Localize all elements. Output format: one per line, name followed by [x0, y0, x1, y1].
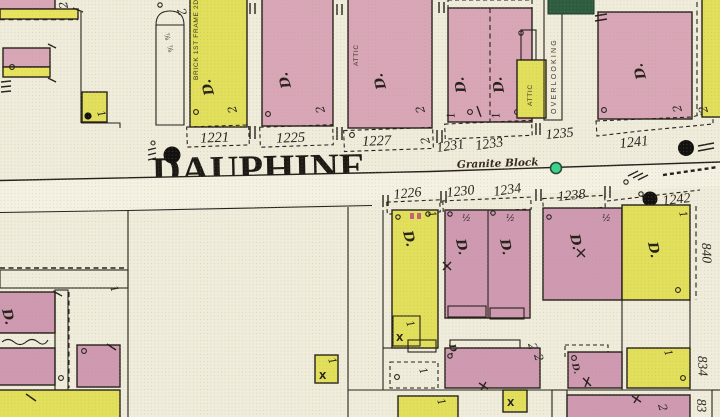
building	[0, 348, 55, 385]
half-story-mark: ½	[602, 213, 611, 224]
half-story-mark: ½	[462, 213, 471, 224]
map-canvas: 1 2 ⅞ ⅞ 2 BRICK 1ST FRAME 2D D. 2 1221 D…	[0, 0, 720, 417]
address-1238: 1238	[557, 187, 586, 205]
attic-label: ATTIC	[527, 84, 534, 106]
chimney-mark	[417, 213, 421, 219]
building	[702, 0, 720, 117]
building	[77, 345, 120, 387]
hydrant-icon	[84, 112, 91, 119]
building	[445, 348, 540, 388]
x-mark: X	[396, 333, 404, 344]
street-paving-label: Granite Block	[457, 156, 539, 171]
dwelling-symbol: D.	[489, 76, 508, 95]
x-mark: X	[507, 398, 515, 409]
address-1226: 1226	[393, 185, 422, 203]
chimney-mark	[410, 213, 414, 219]
hydrant-icon	[164, 147, 181, 164]
sanborn-map-sheet: 1 2 ⅞ ⅞ 2 BRICK 1ST FRAME 2D D. 2 1221 D…	[0, 0, 720, 417]
building	[3, 48, 50, 67]
half-story-mark: ½	[506, 213, 515, 224]
green-patch	[548, 0, 594, 14]
address-1225: 1225	[276, 130, 306, 147]
address-1230: 1230	[446, 183, 475, 201]
address-1227: 1227	[362, 133, 392, 150]
building	[0, 0, 55, 9]
building	[567, 395, 690, 417]
building	[627, 348, 690, 388]
construction-note: BRICK 1ST FRAME 2D	[193, 0, 200, 80]
address-1235: 1235	[545, 126, 574, 143]
address-1241: 1241	[619, 133, 650, 152]
address-1221: 1221	[200, 130, 230, 147]
gallery-strip	[0, 9, 78, 19]
block-number-partial: 83	[694, 399, 709, 413]
hydrant-icon	[678, 140, 694, 156]
building	[0, 390, 120, 417]
attic-label: ATTIC	[353, 44, 360, 66]
water-valve-icon	[551, 163, 562, 174]
dwelling-symbol: D.	[451, 76, 470, 95]
block-number-840: 840	[699, 243, 715, 264]
hydrant-icon	[643, 192, 658, 207]
block-number-834: 834	[695, 356, 711, 377]
building	[398, 396, 458, 417]
overlooking-label: OVERLOOKING	[551, 38, 558, 114]
x-mark: X	[319, 371, 327, 382]
